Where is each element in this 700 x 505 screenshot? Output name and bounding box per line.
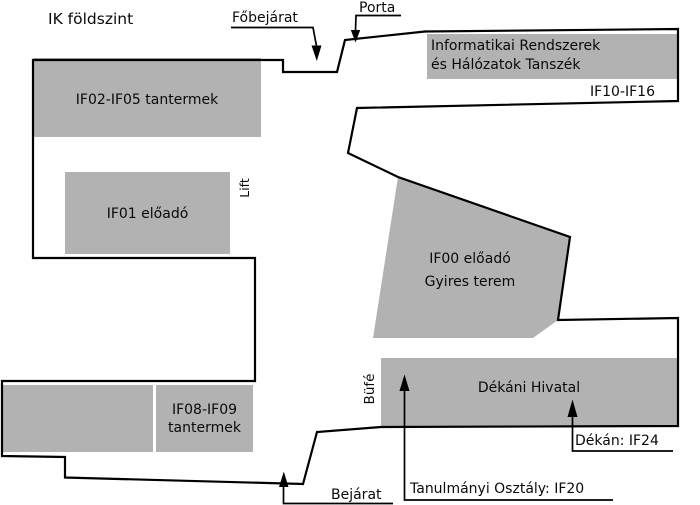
room-label-if02: IF02-IF05 tantermek [33,92,261,108]
room-label-if00-line1: IF00 előadó [390,251,550,267]
room-label-dekani: Dékáni Hivatal [381,380,677,396]
porta-arrowhead-icon [351,30,360,43]
fobejarat-arrowhead-icon [312,46,322,62]
bejarat-label: Bejárat [331,487,382,503]
page-title: IK földszint [48,11,133,29]
porta-arrow-line [356,16,402,31]
fobejarat-arrow-line [231,28,317,47]
lift-label: Lift [238,178,252,198]
room-label-if10-if16: IF10-IF16 [545,84,655,100]
room-shape-if08-left [3,385,153,452]
room-label-if01: IF01 előadó [65,206,230,222]
dekan-if24-label: Dékán: IF24 [575,433,659,449]
floor-plan-drawing [0,0,700,505]
floor-plan: IK földszint Főbejárat Porta IF02-IF05 t… [0,0,700,505]
room-label-if08-line2: tantermek [156,420,253,436]
main-entrance-label: Főbejárat [232,10,298,26]
room-label-if00-line2: Gyires terem [390,274,550,290]
porta-label: Porta [359,0,395,16]
dept-label-line2: és Hálózatok Tanszék [431,57,581,73]
room-label-if08-line1: IF08-IF09 [156,402,253,418]
dept-label-line1: Informatikai Rendszerek [431,38,600,54]
room-shape-if08-right [156,385,253,452]
bufe-label: Büfé [363,374,379,405]
bejarat-arrowhead-icon [279,472,289,488]
tanulmanyi-if20-label: Tanulmányi Osztály: IF20 [410,481,584,497]
